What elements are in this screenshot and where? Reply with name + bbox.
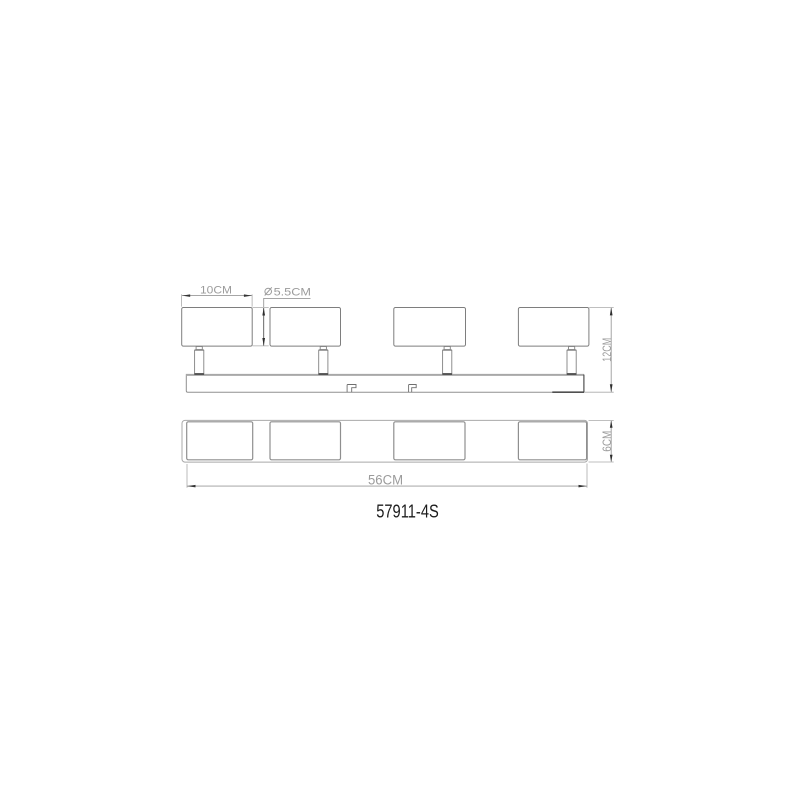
svg-text:57911-4S: 57911-4S xyxy=(376,501,439,521)
svg-text:6CM: 6CM xyxy=(600,431,614,452)
svg-text:10CM: 10CM xyxy=(200,285,232,297)
svg-text:56CM: 56CM xyxy=(368,472,403,487)
svg-text:5.5CM: 5.5CM xyxy=(274,286,311,298)
svg-text:12CM: 12CM xyxy=(600,338,614,362)
